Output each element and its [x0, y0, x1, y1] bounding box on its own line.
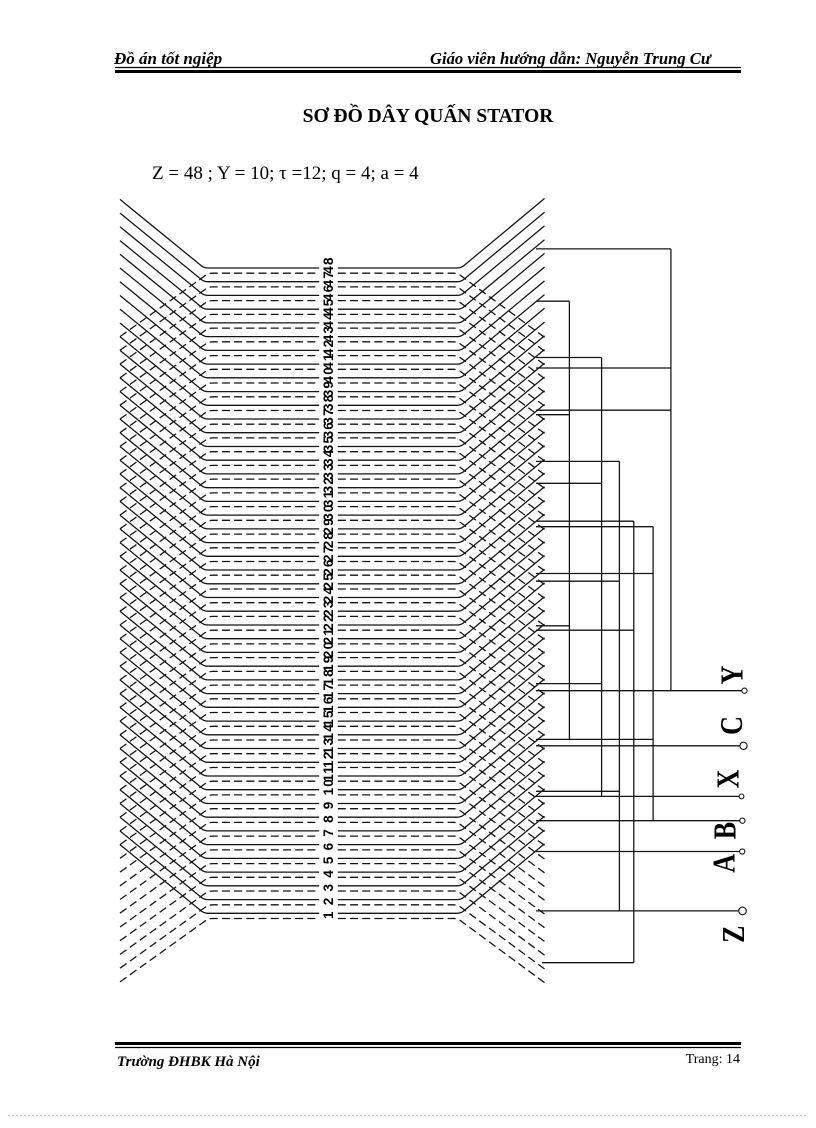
- svg-text:48: 48: [321, 256, 336, 273]
- svg-text:Y: Y: [715, 666, 750, 685]
- svg-text:Z = 48 ; Y = 10; τ =12; q = 4;: Z = 48 ; Y = 10; τ =12; q = 4; a = 4: [152, 163, 419, 184]
- svg-text:SƠ ĐỒ DÂY QUẤN STATOR: SƠ ĐỒ DÂY QUẤN STATOR: [303, 105, 555, 127]
- svg-text:B: B: [708, 822, 743, 839]
- svg-text:3: 3: [321, 883, 336, 892]
- svg-text:6: 6: [321, 842, 336, 851]
- svg-text:5: 5: [321, 855, 336, 864]
- svg-text:8: 8: [321, 814, 336, 823]
- svg-text:A: A: [707, 854, 742, 873]
- svg-text:9: 9: [321, 800, 336, 809]
- svg-text:C: C: [715, 716, 750, 735]
- svg-text:1: 1: [321, 910, 336, 919]
- svg-text:X: X: [711, 770, 746, 789]
- svg-text:7: 7: [321, 828, 336, 837]
- svg-text:Trường ĐHBK Hà Nội: Trường ĐHBK Hà Nội: [117, 1054, 261, 1070]
- svg-text:Z: Z: [717, 926, 752, 943]
- svg-text:Đồ án tốt ngiệp: Đồ án tốt ngiệp: [113, 49, 222, 68]
- svg-text:2: 2: [321, 897, 336, 906]
- svg-text:4: 4: [321, 869, 336, 878]
- svg-text:Trang: 14: Trang: 14: [686, 1052, 740, 1067]
- svg-text:Giáo viên hướng dẫn: Nguyễn Tr: Giáo viên hướng dẫn: Nguyễn Trung Cư: [430, 49, 712, 68]
